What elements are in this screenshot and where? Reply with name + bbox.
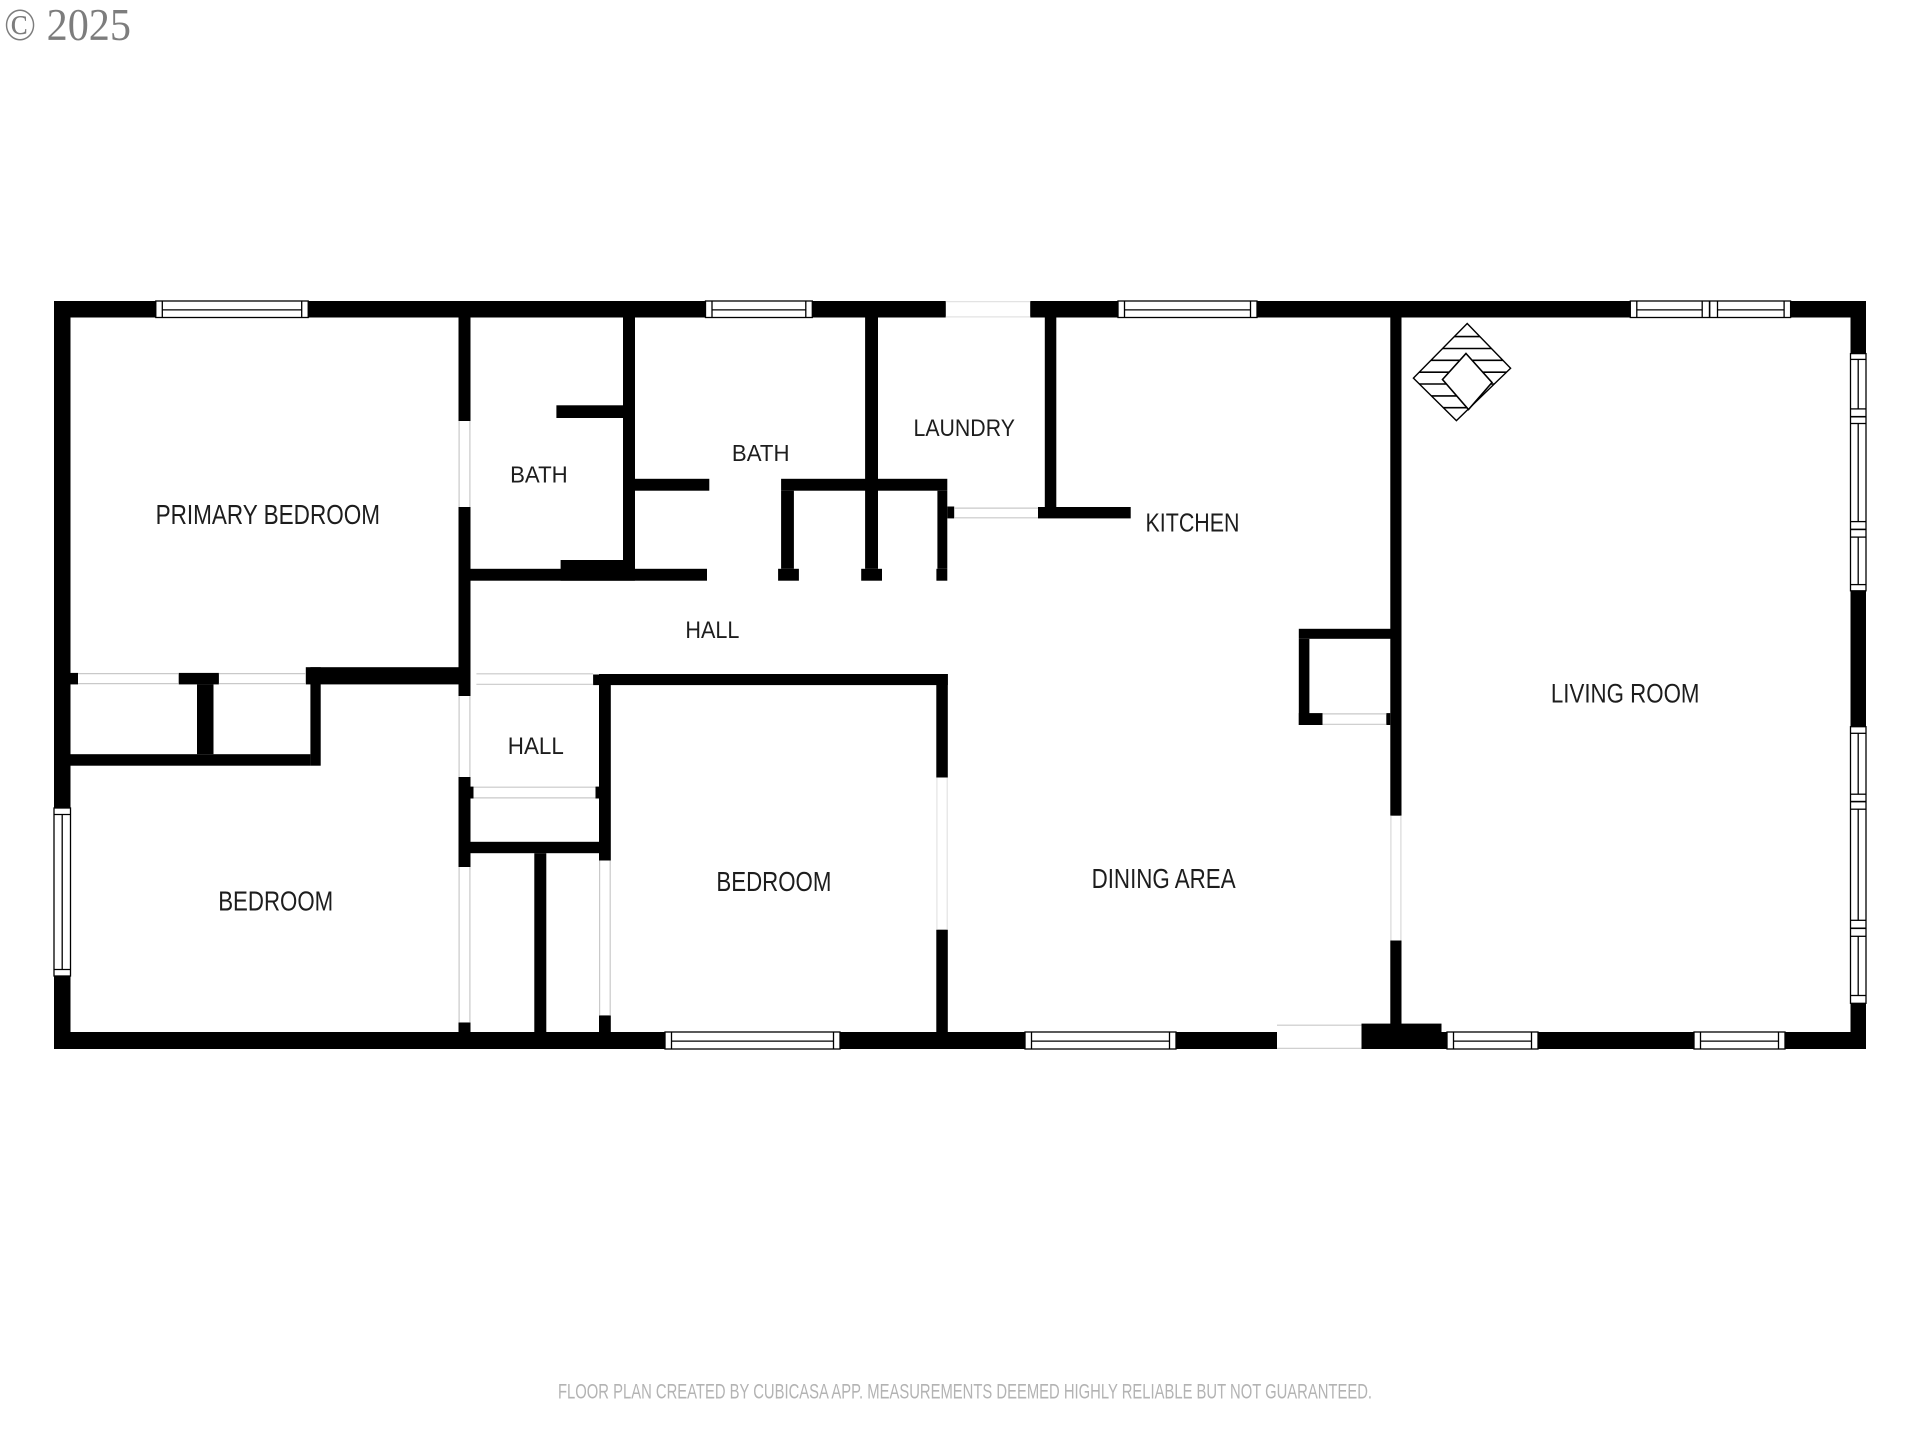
svg-text:BEDROOM: BEDROOM: [716, 866, 831, 897]
svg-text:BATH: BATH: [510, 461, 568, 487]
svg-text:BATH: BATH: [732, 440, 790, 466]
svg-text:HALL: HALL: [685, 617, 739, 644]
svg-text:© 2025: © 2025: [4, 0, 131, 50]
svg-text:PRIMARY BEDROOM: PRIMARY BEDROOM: [156, 499, 380, 530]
svg-text:KITCHEN: KITCHEN: [1146, 510, 1240, 538]
svg-text:LIVING ROOM: LIVING ROOM: [1551, 678, 1700, 708]
svg-text:HALL: HALL: [508, 733, 564, 760]
svg-text:FLOOR PLAN CREATED BY CUBICASA: FLOOR PLAN CREATED BY CUBICASA APP. MEAS…: [558, 1380, 1372, 1404]
svg-text:LAUNDRY: LAUNDRY: [914, 415, 1015, 442]
svg-text:DINING AREA: DINING AREA: [1092, 863, 1236, 894]
svg-text:BEDROOM: BEDROOM: [218, 885, 333, 916]
